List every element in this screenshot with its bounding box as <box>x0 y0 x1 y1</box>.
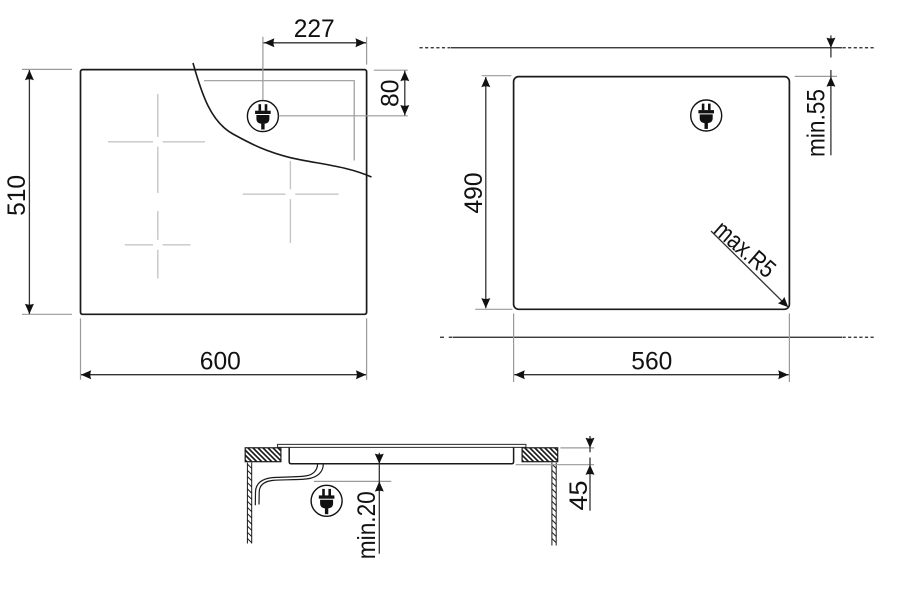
svg-text:min.55: min.55 <box>803 89 831 157</box>
svg-text:min.20: min.20 <box>353 491 381 559</box>
svg-text:max.R5: max.R5 <box>708 215 781 283</box>
svg-text:490: 490 <box>460 173 488 214</box>
svg-text:80: 80 <box>377 80 405 108</box>
svg-text:560: 560 <box>631 347 672 375</box>
svg-text:600: 600 <box>200 347 241 375</box>
svg-text:45: 45 <box>565 481 593 511</box>
svg-text:510: 510 <box>3 175 31 216</box>
svg-text:227: 227 <box>294 15 335 43</box>
